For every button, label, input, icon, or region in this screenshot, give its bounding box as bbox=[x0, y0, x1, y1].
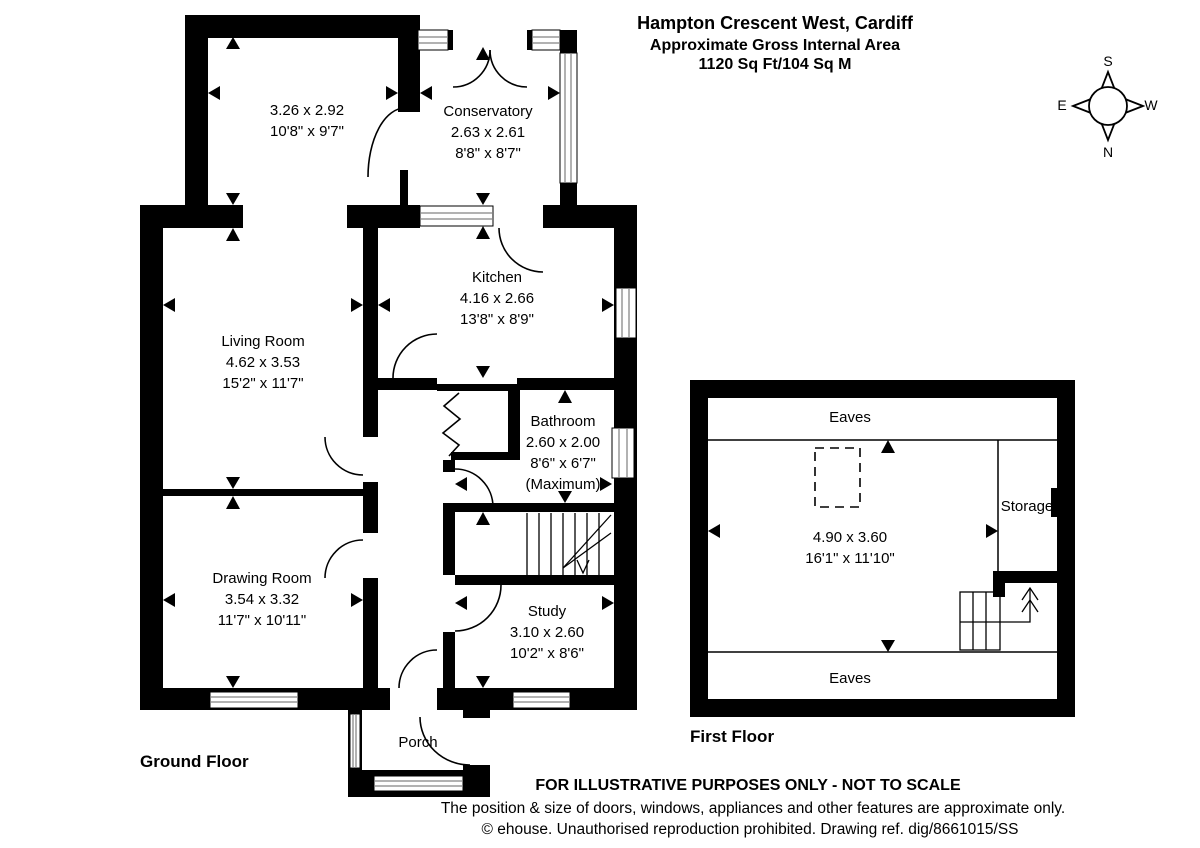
wall bbox=[443, 503, 634, 512]
window bbox=[616, 288, 636, 338]
doorway-opening bbox=[390, 688, 437, 710]
compass-rose bbox=[1073, 72, 1143, 140]
wall bbox=[560, 30, 577, 55]
wall bbox=[993, 571, 1005, 597]
ground-floor-label: Ground Floor bbox=[140, 752, 249, 772]
window bbox=[350, 714, 360, 768]
window bbox=[532, 30, 560, 50]
wall bbox=[997, 571, 1057, 583]
wall bbox=[448, 30, 453, 50]
wall bbox=[363, 378, 437, 390]
footer-disclaimer: FOR ILLUSTRATIVE PURPOSES ONLY - NOT TO … bbox=[535, 777, 960, 795]
room-name: Conservatory bbox=[443, 101, 532, 122]
window bbox=[560, 53, 577, 183]
title-subtitle: Approximate Gross Internal Area bbox=[650, 37, 900, 55]
compass-label-e: E bbox=[1057, 97, 1066, 113]
measure-arrow-up bbox=[226, 228, 240, 241]
wall-cupboard-top bbox=[437, 384, 517, 391]
measure-arrow-up bbox=[558, 390, 572, 403]
room-label-kitchen: Kitchen 4.16 x 2.66 13'8" x 8'9" bbox=[460, 267, 534, 330]
wall bbox=[443, 632, 455, 688]
room-name: Drawing Room bbox=[212, 568, 311, 589]
window bbox=[420, 206, 493, 226]
room-name: Study bbox=[510, 601, 584, 622]
room-label-eaves-top: Eaves bbox=[829, 407, 871, 428]
wall bbox=[347, 205, 420, 228]
title-area: 1120 Sq Ft/104 Sq M bbox=[699, 56, 852, 74]
measure-arrow-down bbox=[226, 193, 240, 205]
measure-arrow-right bbox=[548, 86, 560, 100]
compass-label-n: N bbox=[1103, 144, 1113, 160]
door-arc bbox=[393, 334, 437, 378]
first-floor-label: First Floor bbox=[690, 727, 774, 747]
room-dims-imperial: 16'1" x 11'10" bbox=[805, 548, 895, 569]
room-label-storage: Storage bbox=[1001, 496, 1054, 517]
floorplan-page: Hampton Crescent West, Cardiff Approxima… bbox=[0, 0, 1200, 848]
room-name: Eaves bbox=[829, 407, 871, 428]
measure-arrow-up bbox=[476, 47, 490, 60]
wall bbox=[400, 170, 408, 210]
measure-arrow-right bbox=[602, 298, 614, 312]
measure-arrow-right bbox=[386, 86, 398, 100]
room-dims-imperial: 15'2" x 11'7" bbox=[221, 373, 304, 394]
measure-arrow-right bbox=[600, 477, 612, 491]
room-label-loft: 4.90 x 3.60 16'1" x 11'10" bbox=[805, 527, 895, 569]
footer-copyright: © ehouse. Unauthorised reproduction proh… bbox=[481, 821, 1018, 839]
room-name: Bathroom bbox=[526, 411, 601, 432]
wall-divider bbox=[163, 489, 363, 496]
measure-arrow-left bbox=[163, 593, 175, 607]
window bbox=[612, 428, 634, 478]
measure-arrow-down bbox=[476, 193, 490, 205]
room-name: Eaves bbox=[829, 668, 871, 689]
room-label-drawing-room: Drawing Room 3.54 x 3.32 11'7" x 10'11" bbox=[212, 568, 311, 631]
measure-arrow-left bbox=[455, 596, 467, 610]
cupboard-folding-door bbox=[443, 393, 460, 456]
door-arc bbox=[490, 50, 527, 87]
door-arc bbox=[455, 585, 501, 631]
room-dims-imperial: 8'6" x 6'7" bbox=[526, 453, 601, 474]
measure-arrow-right bbox=[351, 593, 363, 607]
wall bbox=[443, 512, 455, 575]
wall bbox=[405, 30, 418, 50]
room-dims-metric: 3.10 x 2.60 bbox=[510, 622, 584, 643]
measure-arrow-right bbox=[351, 298, 363, 312]
measure-arrow-up bbox=[476, 226, 490, 239]
door-arc bbox=[325, 540, 363, 578]
measure-arrow-left bbox=[378, 298, 390, 312]
room-dims-imperial: 13'8" x 8'9" bbox=[460, 309, 534, 330]
room-name: Porch bbox=[398, 732, 437, 753]
window bbox=[210, 692, 298, 708]
door-arc bbox=[325, 437, 363, 475]
measure-arrow-up bbox=[476, 512, 490, 525]
room-dims-metric: 4.16 x 2.66 bbox=[460, 288, 534, 309]
measure-arrow-left bbox=[420, 86, 432, 100]
measure-arrow-down bbox=[226, 676, 240, 688]
door-arc bbox=[455, 469, 493, 507]
measure-arrow-left bbox=[163, 298, 175, 312]
compass-label-w: W bbox=[1144, 97, 1157, 113]
compass-circle bbox=[1089, 87, 1127, 125]
wall-cupboard-bottom bbox=[451, 452, 520, 460]
footer-approx-note: The position & size of doors, windows, a… bbox=[441, 800, 1065, 818]
room-dims-imperial: 8'8" x 8'7" bbox=[443, 143, 532, 164]
room-label-porch: Porch bbox=[398, 732, 437, 753]
measure-arrow-down bbox=[476, 676, 490, 688]
door-arc bbox=[399, 650, 437, 688]
compass-label-s: S bbox=[1103, 53, 1112, 69]
room-dims-metric: 2.60 x 2.00 bbox=[526, 432, 601, 453]
wall bbox=[560, 183, 577, 205]
measure-arrow-up bbox=[226, 37, 240, 49]
room-label-reception: 3.26 x 2.92 10'8" x 9'7" bbox=[270, 100, 344, 142]
wall bbox=[185, 15, 420, 38]
measure-arrow-left bbox=[455, 477, 467, 491]
wall bbox=[185, 15, 208, 210]
room-label-living-room: Living Room 4.62 x 3.53 15'2" x 11'7" bbox=[221, 331, 304, 394]
measure-arrow-up bbox=[226, 496, 240, 509]
measure-arrow-left bbox=[208, 86, 220, 100]
wall bbox=[517, 378, 637, 390]
room-label-conservatory: Conservatory 2.63 x 2.61 8'8" x 8'7" bbox=[443, 101, 532, 164]
room-dims-metric: 3.26 x 2.92 bbox=[270, 100, 344, 121]
room-dims-imperial: 10'8" x 9'7" bbox=[270, 121, 344, 142]
wall bbox=[363, 482, 378, 533]
wall bbox=[140, 205, 163, 710]
door-arc bbox=[368, 108, 405, 177]
measure-arrow-right bbox=[602, 596, 614, 610]
room-label-eaves-bottom: Eaves bbox=[829, 668, 871, 689]
room-name: Storage bbox=[1001, 496, 1054, 517]
door-arc bbox=[499, 228, 543, 272]
window bbox=[513, 692, 570, 708]
room-label-study: Study 3.10 x 2.60 10'2" x 8'6" bbox=[510, 601, 584, 664]
page-title: Hampton Crescent West, Cardiff bbox=[637, 13, 913, 34]
window bbox=[374, 776, 463, 791]
window bbox=[418, 30, 448, 50]
room-dims-metric: 4.90 x 3.60 bbox=[805, 527, 895, 548]
wall-cupboard-right bbox=[508, 390, 520, 460]
room-name: Living Room bbox=[221, 331, 304, 352]
wall bbox=[363, 578, 378, 688]
room-name: Kitchen bbox=[460, 267, 534, 288]
wall bbox=[455, 575, 637, 585]
room-dims-imperial: 11'7" x 10'11" bbox=[212, 610, 311, 631]
room-label-bathroom: Bathroom 2.60 x 2.00 8'6" x 6'7" (Maximu… bbox=[526, 411, 601, 495]
room-dims-metric: 2.63 x 2.61 bbox=[443, 122, 532, 143]
wall bbox=[443, 460, 455, 472]
measure-arrow-down bbox=[476, 366, 490, 378]
wall bbox=[527, 30, 532, 50]
room-dims-note: (Maximum) bbox=[526, 474, 601, 495]
room-dims-imperial: 10'2" x 8'6" bbox=[510, 643, 584, 664]
room-dims-metric: 3.54 x 3.32 bbox=[212, 589, 311, 610]
room-dims-metric: 4.62 x 3.53 bbox=[221, 352, 304, 373]
wall-porch bbox=[463, 688, 490, 718]
wall bbox=[363, 228, 378, 437]
measure-arrow-down bbox=[226, 477, 240, 489]
